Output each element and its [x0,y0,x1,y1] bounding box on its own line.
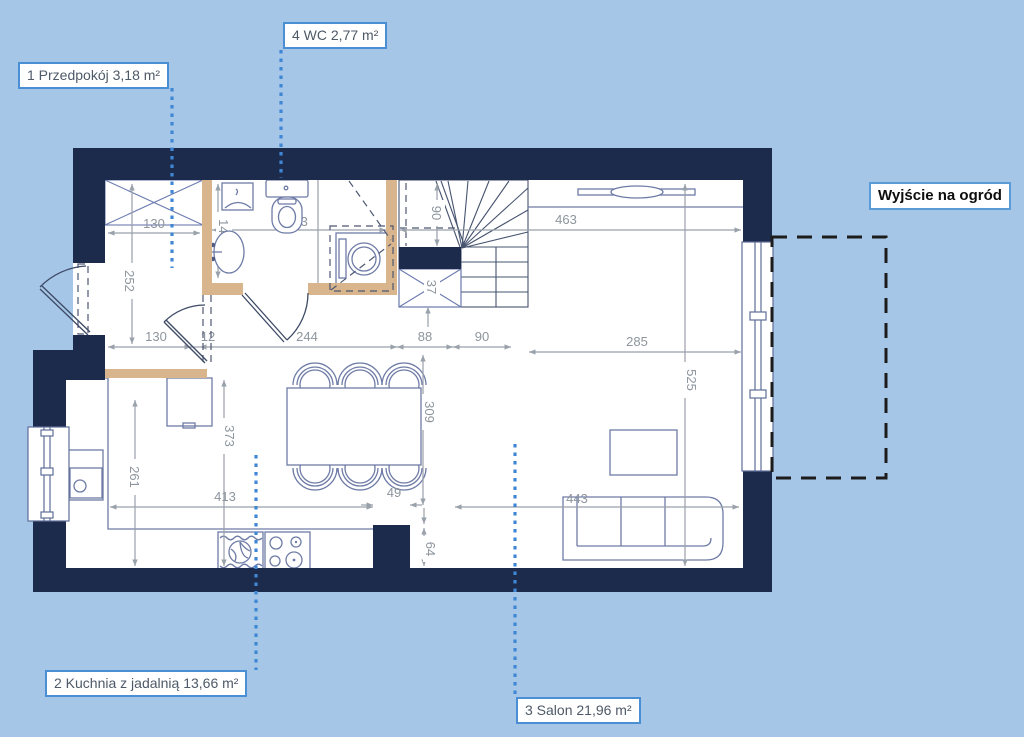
bottom-wall-stub [373,525,410,568]
dim-hall-depth: 252 [122,270,137,292]
wc-cabinet [222,183,253,210]
dim-hall-width: 130 [145,329,167,344]
patio-window [742,242,773,471]
room-label-kuchnia: 2 Kuchnia z jadalnią 13,66 m² [45,670,247,697]
dim-kitchen-depth: 373 [222,425,237,447]
floor-plan-canvas: 130 252 140 233 90 463 130 12 244 88 90 … [0,0,1024,737]
floor-plan-page: 130 252 140 233 90 463 130 12 244 88 90 … [0,0,1024,737]
room-label-salon: 3 Salon 21,96 m² [516,697,641,724]
dim-salon-top: 463 [555,212,577,227]
garden-exit-label: Wyjście na ogród [869,182,1011,210]
room-label-wc: 4 WC 2,77 m² [283,22,387,49]
dim-kitchen-bottom: 413 [214,489,236,504]
terrace-outline [772,237,886,478]
dim-stair-stub: 37 [424,280,439,294]
dim-stub-height: 64 [423,542,438,556]
dim-dining-width: 309 [422,401,437,423]
dim-kitchen-top: 244 [296,329,318,344]
dim-stub-width: 49 [387,485,401,500]
kitchen-window [28,427,69,521]
room-label-przedpokoj: 1 Przedpokój 3,18 m² [18,62,169,89]
dim-stair-width: 90 [429,206,444,220]
dim-closet-width: 130 [143,216,165,231]
dim-sofa-span: 443 [566,491,588,506]
dim-stair-seg-b: 90 [475,329,489,344]
dim-salon-depth: 525 [684,369,699,391]
dim-kitchen-left: 261 [127,466,142,488]
washing-machine [336,233,388,285]
dining-table [287,388,421,465]
fridge-cabinet [167,378,212,428]
toilet [266,180,308,233]
cooktop [265,532,310,572]
dim-stair-seg-a: 88 [418,329,432,344]
stair-wall-stub [399,247,461,269]
kitchen-sink-left [68,450,103,500]
dim-salon-right: 285 [626,334,648,349]
